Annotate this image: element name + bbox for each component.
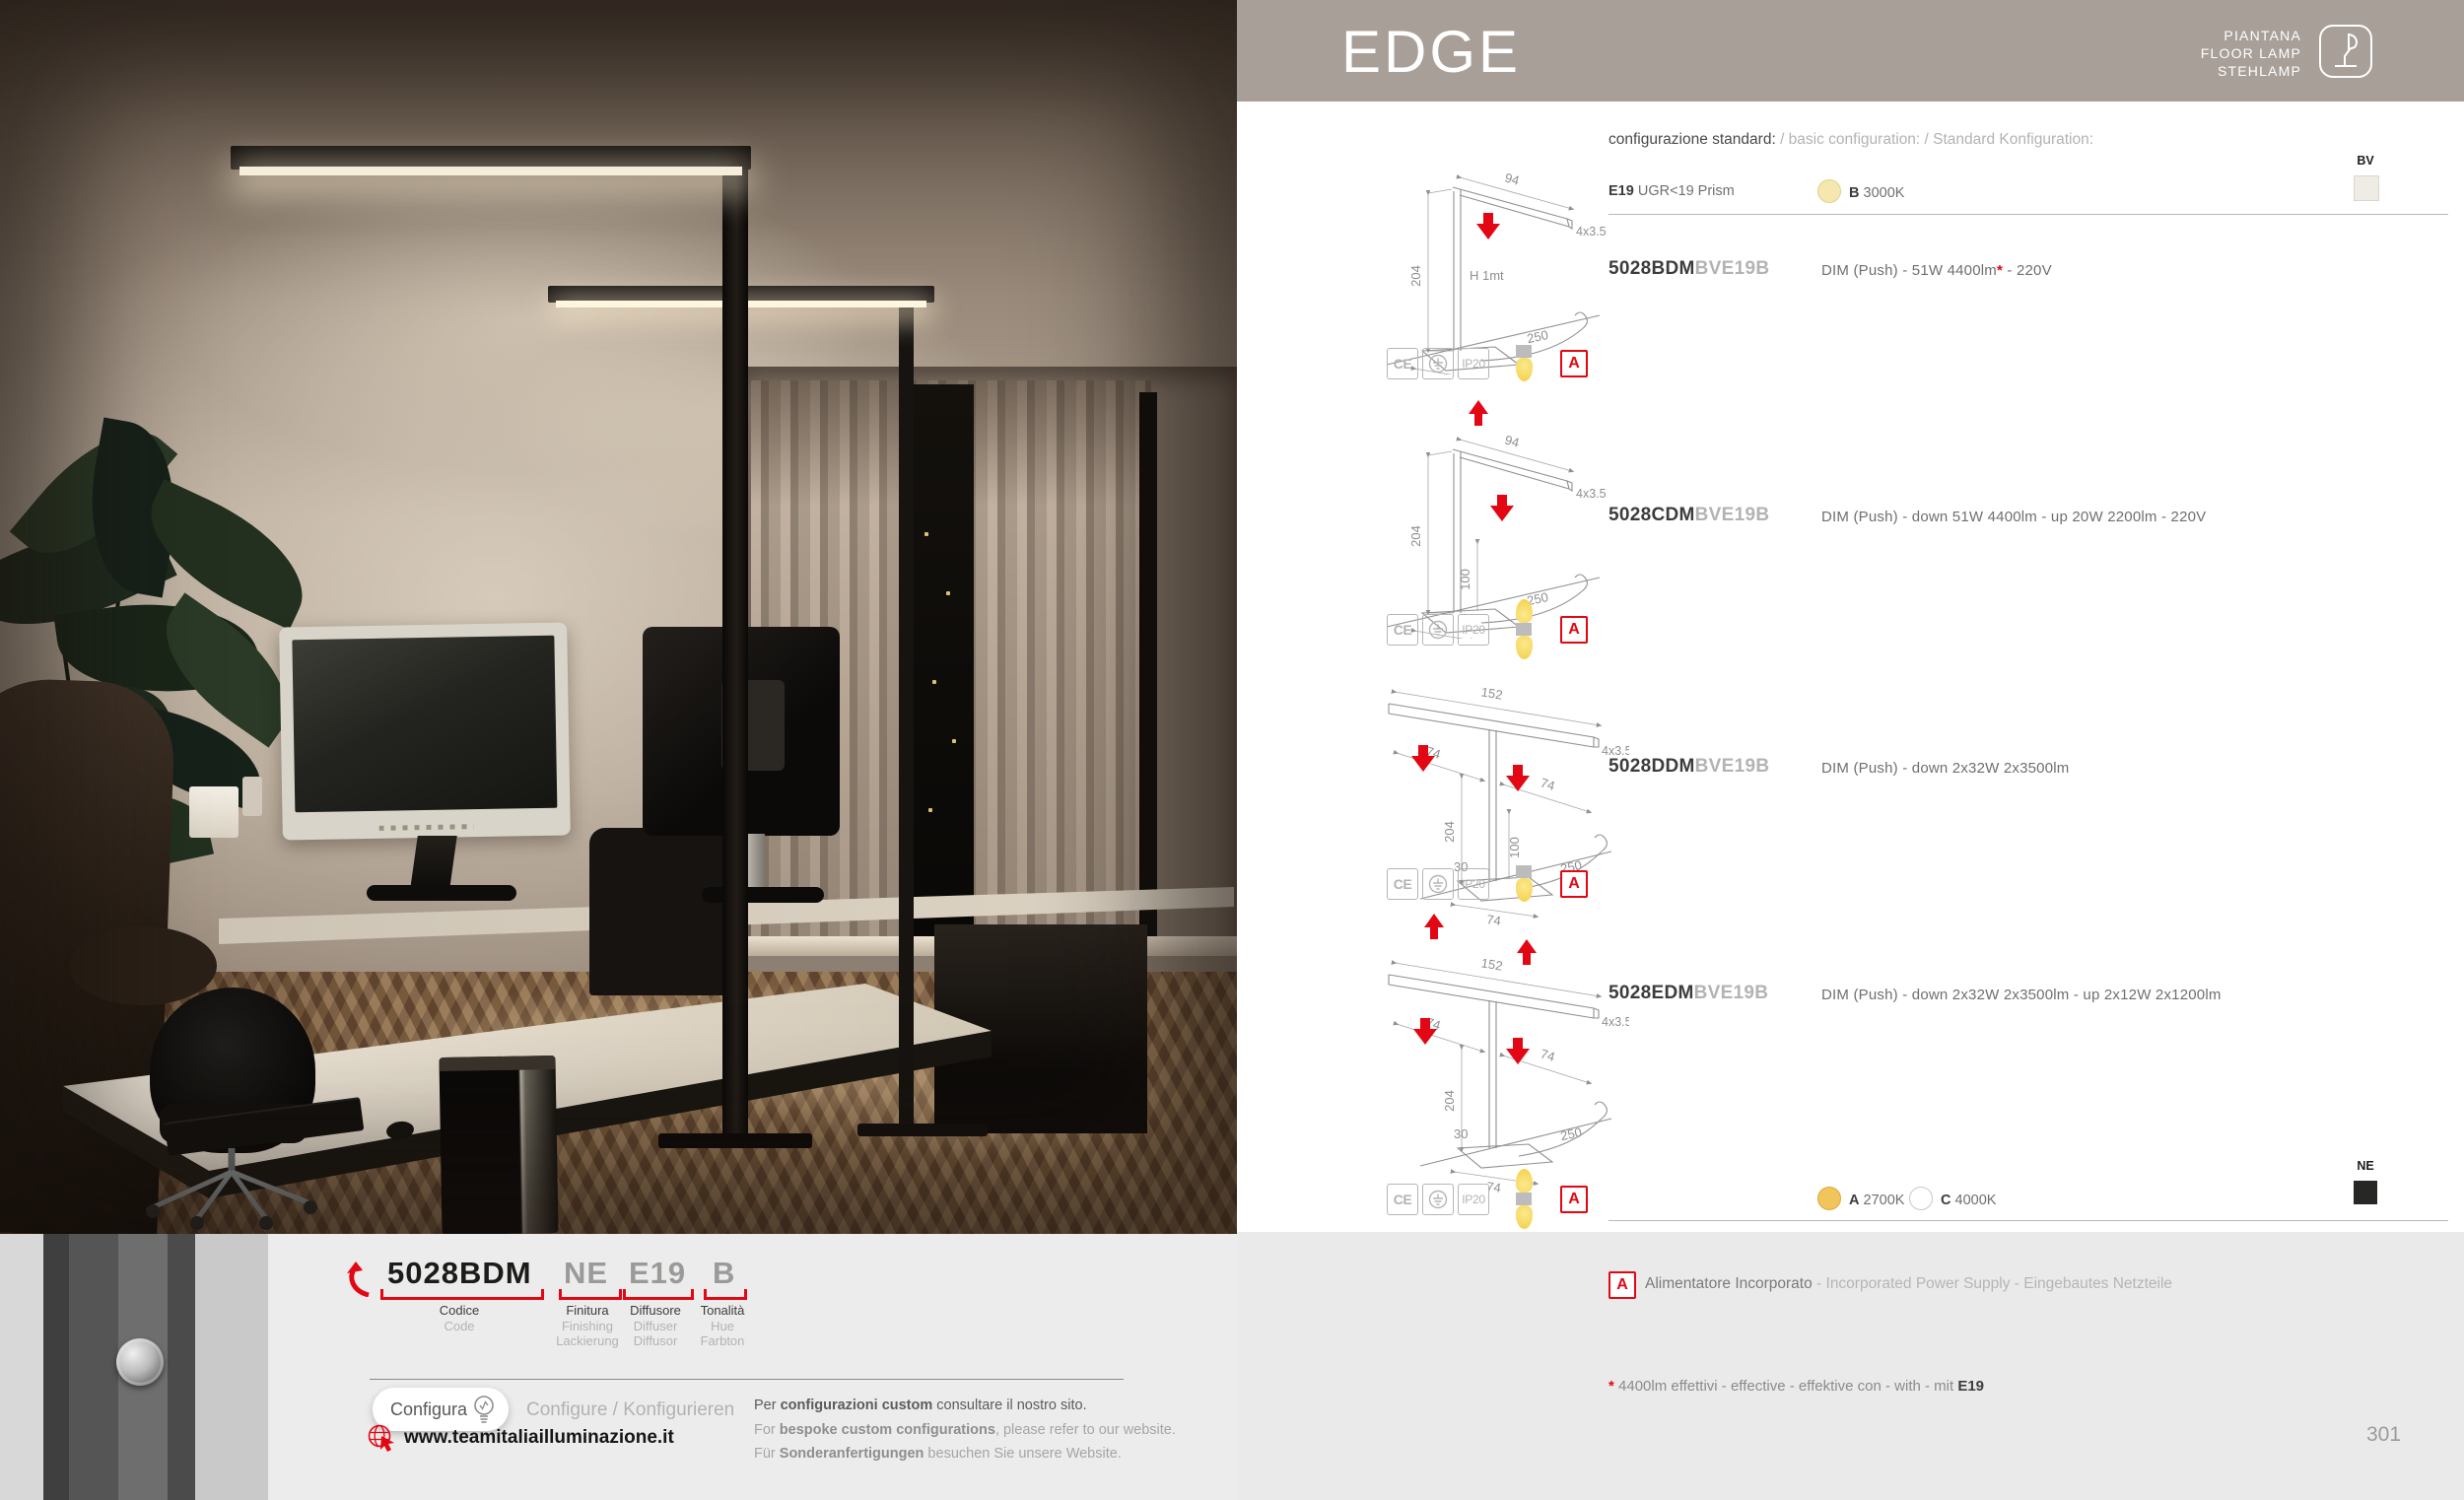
down-light-bulb-icon <box>1513 345 1535 381</box>
ce-mark-icon: CE <box>1387 1184 1418 1215</box>
svg-text:250: 250 <box>1526 327 1549 346</box>
power-supply-badge: A <box>1608 1271 1636 1299</box>
monitor-right-base <box>702 887 824 903</box>
finish-swatch-bv <box>2354 175 2379 201</box>
ip20-rating-box: IP20 <box>1458 614 1489 646</box>
certification-row: CE IP20 A <box>1387 1169 1588 1229</box>
power-supply-badge: A <box>1560 616 1588 644</box>
footer-band <box>1237 1232 2464 1500</box>
product-code: 5028EDMBVE19B <box>1608 983 1768 1004</box>
svg-text:204: 204 <box>1442 821 1457 843</box>
ip20-rating-box: IP20 <box>1458 348 1489 379</box>
chair-star-base <box>138 1148 325 1232</box>
product-desc: DIM (Push) - down 51W 4400lm - up 20W 22… <box>1821 509 2206 525</box>
window-night-view <box>913 384 974 948</box>
floor-lamp-near-base <box>658 1133 812 1148</box>
desk-cube <box>189 786 239 838</box>
category-labels: PIANTANA FLOOR LAMP STEHLAMP <box>2070 27 2301 80</box>
floor-lamp-far-base <box>857 1124 988 1136</box>
finish-swatch-ne <box>2354 1181 2377 1204</box>
svg-text:204: 204 <box>1442 1090 1457 1112</box>
builder-hue: B <box>713 1256 735 1291</box>
power-supply-note: Alimentatore Incorporato - Incorporated … <box>1645 1275 2172 1293</box>
hue-option-a: A 2700K <box>1817 1187 1904 1210</box>
monitor-left-stand <box>410 836 457 889</box>
svg-text:152: 152 <box>1480 684 1504 702</box>
finish-bracket <box>559 1289 622 1300</box>
floor-lamp-near-light <box>240 167 742 175</box>
builder-code: 5028BDM <box>387 1256 532 1291</box>
svg-text:30: 30 <box>1454 1126 1468 1141</box>
lightbulb-icon <box>471 1395 497 1424</box>
svg-text:94: 94 <box>1503 433 1521 450</box>
product-desc: DIM (Push) - 51W 4400lm* - 220V <box>1821 262 2052 279</box>
code-bracket <box>380 1289 544 1300</box>
config-title: configurazione standard: / basic configu… <box>1608 131 2093 149</box>
product-desc: DIM (Push) - down 2x32W 2x3500lm <box>1821 760 2070 777</box>
monitor-left-base <box>367 885 516 901</box>
svg-text:152: 152 <box>1480 955 1504 973</box>
tech-drawing-L-lamp: 94 4x3.5 204 H 1mt 250 55 <box>1363 138 1629 375</box>
push-button-detail-photo <box>0 1234 268 1500</box>
tech-drawing-T-lamp-updown: 152 4x3.5 74 74 204 30 250 74 <box>1363 912 1629 1197</box>
finish-bv-label: BV <box>2354 154 2377 168</box>
diffuser-bracket <box>623 1289 694 1300</box>
power-supply-badge: A <box>1560 1186 1588 1213</box>
leather-chair-armrest <box>69 926 217 1005</box>
svg-text:94: 94 <box>1503 170 1521 188</box>
down-light-bulb-icon <box>1513 865 1535 902</box>
ce-mark-icon: CE <box>1387 868 1418 900</box>
svg-text:204: 204 <box>1408 525 1423 547</box>
power-supply-badge: A <box>1560 870 1588 898</box>
product-code: 5028BDMBVE19B <box>1608 258 1769 280</box>
lumen-footnote: * 4400lm effettivi - effective - effekti… <box>1608 1378 1984 1395</box>
hue-label: Tonalità Hue Farbton <box>668 1303 777 1349</box>
website-link[interactable]: www.teamitaliailluminazione.it <box>404 1427 674 1449</box>
certification-row: CE IP20 A <box>1387 345 1588 381</box>
code-label: Codice Code <box>400 1303 518 1333</box>
earth-ground-icon <box>1422 868 1454 900</box>
page-title: EDGE <box>1341 18 1521 86</box>
svg-text:100: 100 <box>1507 837 1522 858</box>
earth-ground-icon <box>1422 614 1454 646</box>
curved-arrow-icon <box>343 1261 375 1297</box>
divider <box>1608 1220 2448 1221</box>
ce-mark-icon: CE <box>1387 348 1418 379</box>
catalog-page: 5028BDM NE E19 B Codice Code Finitura Fi… <box>0 0 2464 1500</box>
ip20-rating-box: IP20 <box>1458 1184 1489 1215</box>
svg-text:100: 100 <box>1458 569 1472 590</box>
hue-option-c: C 4000K <box>1909 1187 1996 1210</box>
svg-text:250: 250 <box>1559 1125 1583 1143</box>
product-data-panel: EDGE PIANTANA FLOOR LAMP STEHLAMP config… <box>1237 0 2464 1500</box>
power-supply-badge: A <box>1560 350 1588 377</box>
earth-ground-icon <box>1422 348 1454 379</box>
pc-tower <box>439 1056 558 1234</box>
page-number: 301 <box>2366 1423 2401 1447</box>
configurator-panel: 5028BDM NE E19 B Codice Code Finitura Fi… <box>268 1234 1237 1500</box>
svg-text:4x3.5: 4x3.5 <box>1602 1015 1629 1029</box>
office-scene-photo <box>0 0 1237 1234</box>
hue-option-b: B 3000K <box>1817 179 1904 203</box>
svg-text:H 1mt: H 1mt <box>1470 268 1504 283</box>
globe-cursor-icon[interactable] <box>367 1423 396 1453</box>
hue-swatch-2700k <box>1817 1187 1841 1210</box>
builder-diffuser: E19 <box>629 1256 686 1291</box>
floor-lamp-near-pole <box>722 148 748 1147</box>
pen-cup <box>242 777 262 816</box>
floor-lamp-far-pole <box>899 296 914 1128</box>
product-code: 5028DDMBVE19B <box>1608 756 1769 778</box>
monitor-left <box>279 622 571 840</box>
monitor-right-stand <box>745 834 765 891</box>
earth-ground-icon <box>1422 1184 1454 1215</box>
divider <box>1608 214 2448 215</box>
finish-ne-label: NE <box>2354 1159 2377 1173</box>
window-night-view <box>1139 392 1157 940</box>
builder-finish: NE <box>564 1256 608 1291</box>
svg-text:204: 204 <box>1408 265 1423 287</box>
header-band: EDGE PIANTANA FLOOR LAMP STEHLAMP <box>1237 0 2464 102</box>
hue-bracket <box>704 1289 747 1300</box>
configure-alt-label: Configure / Konfigurieren <box>526 1399 734 1421</box>
office-chair-back <box>589 828 737 995</box>
certification-row: CE IP20 A <box>1387 865 1588 902</box>
ip20-rating-box: IP20 <box>1458 868 1489 900</box>
configure-button-label: Configura <box>390 1399 467 1420</box>
dimmer-push-button <box>116 1338 164 1386</box>
ce-mark-icon: CE <box>1387 614 1418 646</box>
svg-text:74: 74 <box>1539 1046 1556 1064</box>
custom-config-notes: Per configurazioni custom consultare il … <box>754 1394 1176 1466</box>
svg-text:4x3.5: 4x3.5 <box>1576 225 1607 239</box>
hue-swatch-4000k <box>1909 1187 1933 1210</box>
divider <box>370 1379 1124 1380</box>
up-down-light-bulb-icon <box>1513 1169 1535 1229</box>
product-code: 5028CDMBVE19B <box>1608 505 1769 526</box>
product-desc: DIM (Push) - down 2x32W 2x3500lm - up 2x… <box>1821 987 2222 1003</box>
svg-text:74: 74 <box>1539 775 1556 793</box>
floor-lamp-icon <box>2319 25 2372 78</box>
svg-text:4x3.5: 4x3.5 <box>1576 487 1607 501</box>
hue-swatch-3000k <box>1817 179 1841 203</box>
